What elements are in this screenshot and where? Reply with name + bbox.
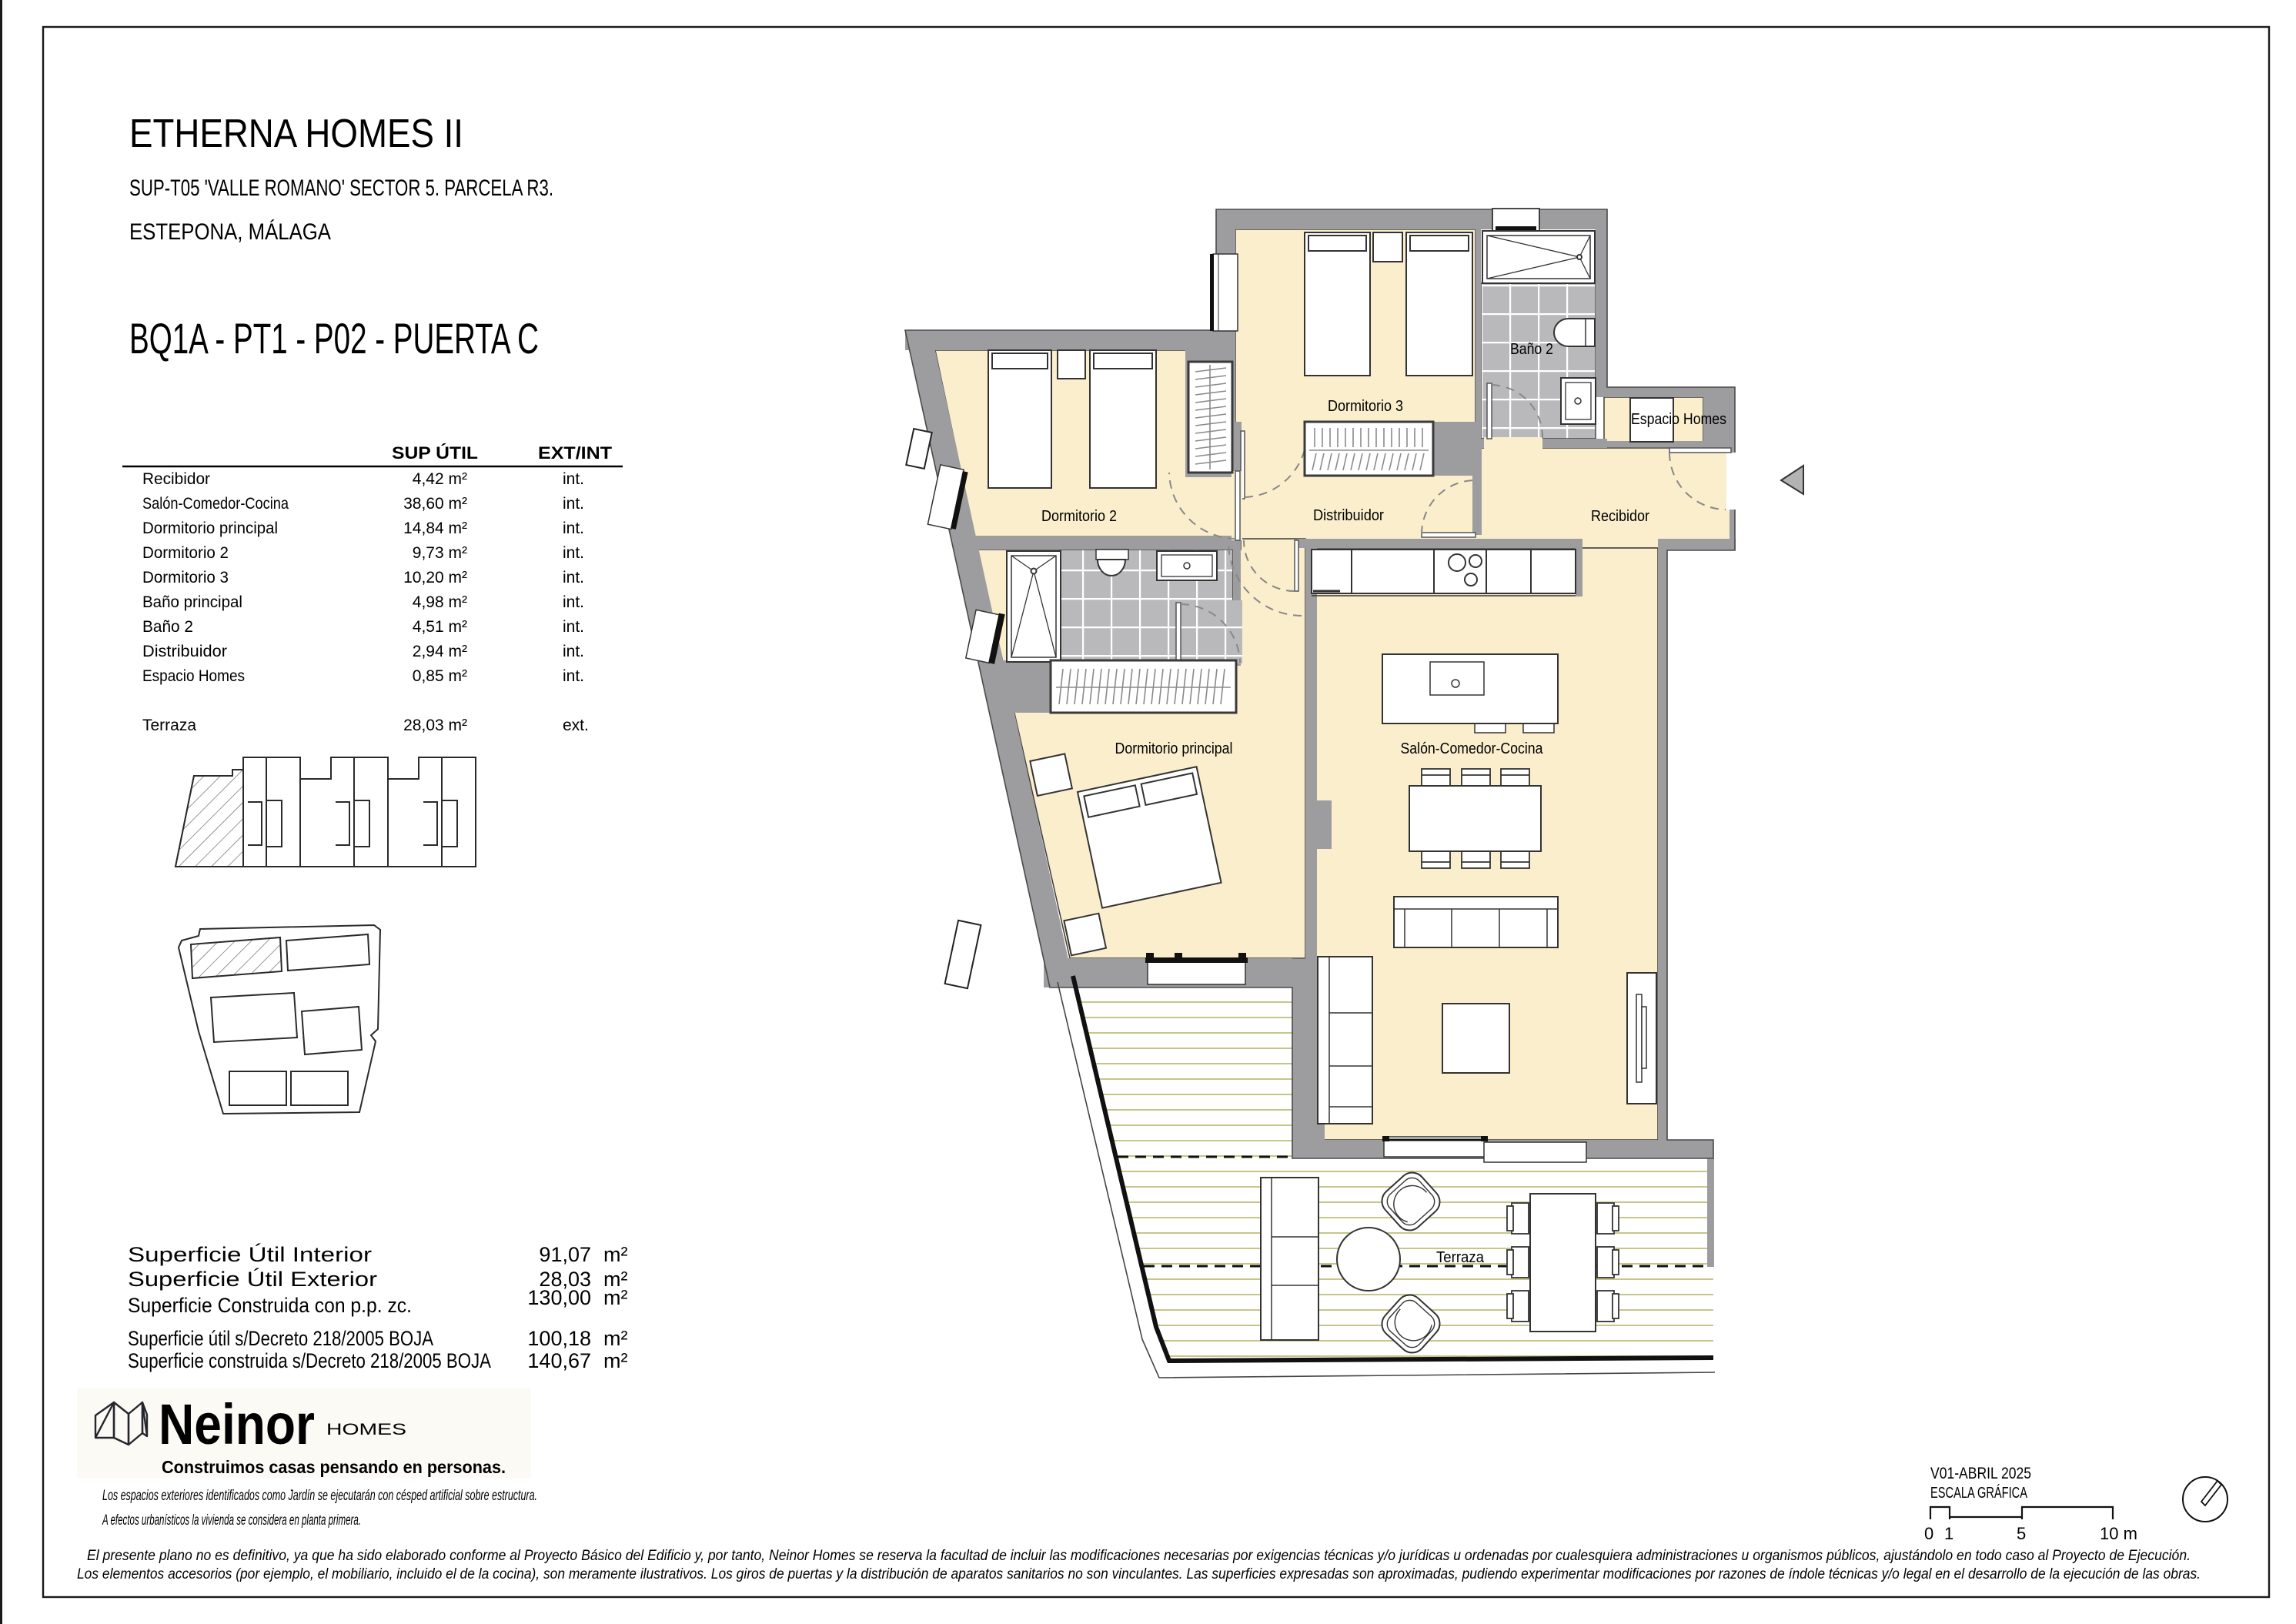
svg-text:Dormitorio 2: Dormitorio 2 — [142, 544, 229, 562]
svg-text:28,03 m²: 28,03 m² — [403, 717, 467, 734]
svg-text:Distribuidor: Distribuidor — [1313, 507, 1384, 524]
svg-text:100,18: 100,18 — [527, 1327, 591, 1350]
svg-text:14,84 m²: 14,84 m² — [403, 520, 467, 537]
svg-text:Terraza: Terraza — [1436, 1249, 1485, 1266]
svg-text:4,42 m²: 4,42 m² — [413, 470, 467, 488]
svg-text:Dormitorio principal: Dormitorio principal — [1115, 740, 1233, 757]
svg-text:SUP ÚTIL: SUP ÚTIL — [392, 443, 478, 463]
svg-text:Espacio Homes: Espacio Homes — [1631, 411, 1726, 428]
svg-text:4,98 m²: 4,98 m² — [413, 593, 467, 611]
svg-text:10 m: 10 m — [2100, 1524, 2137, 1543]
svg-text:Dormitorio principal: Dormitorio principal — [142, 520, 278, 537]
svg-text:Salón-Comedor-Cocina: Salón-Comedor-Cocina — [1401, 740, 1544, 757]
svg-text:m²: m² — [603, 1243, 627, 1266]
svg-text:ext.: ext. — [563, 717, 589, 734]
svg-text:Distribuidor: Distribuidor — [142, 643, 227, 660]
svg-text:int.: int. — [563, 643, 584, 660]
svg-text:Superficie útil s/Decreto 218/: Superficie útil s/Decreto 218/2005 BOJA — [128, 1327, 433, 1350]
svg-text:int.: int. — [563, 495, 584, 513]
svg-text:0,85 m²: 0,85 m² — [413, 667, 467, 685]
svg-text:Baño 2: Baño 2 — [1510, 341, 1553, 358]
svg-text:ESCALA GRÁFICA: ESCALA GRÁFICA — [1930, 1484, 2027, 1502]
svg-text:Recibidor: Recibidor — [142, 470, 210, 488]
svg-text:5: 5 — [2017, 1524, 2026, 1543]
svg-text:1: 1 — [1944, 1524, 1953, 1543]
svg-text:int.: int. — [563, 544, 584, 562]
svg-text:0: 0 — [1924, 1524, 1933, 1543]
svg-text:Dormitorio 3: Dormitorio 3 — [1328, 398, 1403, 415]
svg-text:Terraza: Terraza — [142, 717, 196, 734]
svg-text:m²: m² — [603, 1286, 627, 1309]
svg-text:int.: int. — [563, 520, 584, 537]
svg-text:Construimos casas pensando en: Construimos casas pensando en personas. — [162, 1457, 506, 1477]
svg-text:SUP-T05 'VALLE ROMANO' SECTOR: SUP-T05 'VALLE ROMANO' SECTOR 5. PARCELA… — [129, 175, 553, 201]
svg-text:130,00: 130,00 — [527, 1286, 591, 1309]
svg-text:El presente plano no es defini: El presente plano no es definitivo, ya q… — [87, 1548, 2191, 1564]
svg-text:Espacio Homes: Espacio Homes — [142, 667, 245, 685]
svg-text:4,51 m²: 4,51 m² — [413, 618, 467, 636]
svg-text:ETHERNA HOMES II: ETHERNA HOMES II — [129, 112, 463, 156]
svg-text:Baño principal: Baño principal — [142, 593, 242, 611]
svg-text:Salón-Comedor-Cocina: Salón-Comedor-Cocina — [142, 495, 289, 513]
svg-text:Dormitorio 3: Dormitorio 3 — [142, 569, 229, 586]
svg-text:140,67: 140,67 — [527, 1349, 591, 1372]
svg-text:Baño 2: Baño 2 — [142, 618, 193, 636]
svg-text:2,94 m²: 2,94 m² — [413, 643, 467, 660]
svg-text:Dormitorio 2: Dormitorio 2 — [1041, 508, 1117, 525]
svg-text:Superficie Útil Exterior: Superficie Útil Exterior — [128, 1267, 377, 1291]
svg-text:91,07: 91,07 — [539, 1243, 591, 1266]
svg-text:Superficie construida s/Decret: Superficie construida s/Decreto 218/2005… — [128, 1349, 491, 1372]
svg-text:int.: int. — [563, 569, 584, 586]
svg-text:V01-ABRIL 2025: V01-ABRIL 2025 — [1930, 1465, 2031, 1482]
svg-text:int.: int. — [563, 470, 584, 488]
svg-text:int.: int. — [563, 593, 584, 611]
svg-text:int.: int. — [563, 618, 584, 636]
svg-text:ESTEPONA, MÁLAGA: ESTEPONA, MÁLAGA — [129, 219, 331, 245]
svg-text:Superficie Útil Interior: Superficie Útil Interior — [128, 1242, 372, 1266]
svg-text:BQ1A - PT1 - P02 - PUERTA C: BQ1A - PT1 - P02 - PUERTA C — [129, 314, 539, 363]
svg-text:Recibidor: Recibidor — [1591, 508, 1649, 525]
svg-text:Neinor: Neinor — [159, 1392, 315, 1456]
svg-text:38,60 m²: 38,60 m² — [403, 495, 467, 513]
svg-text:A efectos urbanísticos la vivi: A efectos urbanísticos la vivienda se co… — [102, 1512, 361, 1529]
svg-text:int.: int. — [563, 667, 584, 685]
svg-text:HOMES: HOMES — [326, 1421, 406, 1439]
svg-text:Superficie Construida con p.p.: Superficie Construida con p.p. zc. — [128, 1294, 412, 1317]
svg-text:m²: m² — [603, 1327, 627, 1350]
svg-text:10,20 m²: 10,20 m² — [403, 569, 467, 586]
svg-text:Los elementos accesorios (por: Los elementos accesorios (por ejemplo, e… — [77, 1566, 2201, 1582]
svg-text:Los espacios exteriores identi: Los espacios exteriores identificados co… — [102, 1488, 537, 1504]
svg-text:m²: m² — [603, 1349, 627, 1372]
svg-text:9,73 m²: 9,73 m² — [413, 544, 467, 562]
svg-text:EXT/INT: EXT/INT — [538, 443, 613, 463]
